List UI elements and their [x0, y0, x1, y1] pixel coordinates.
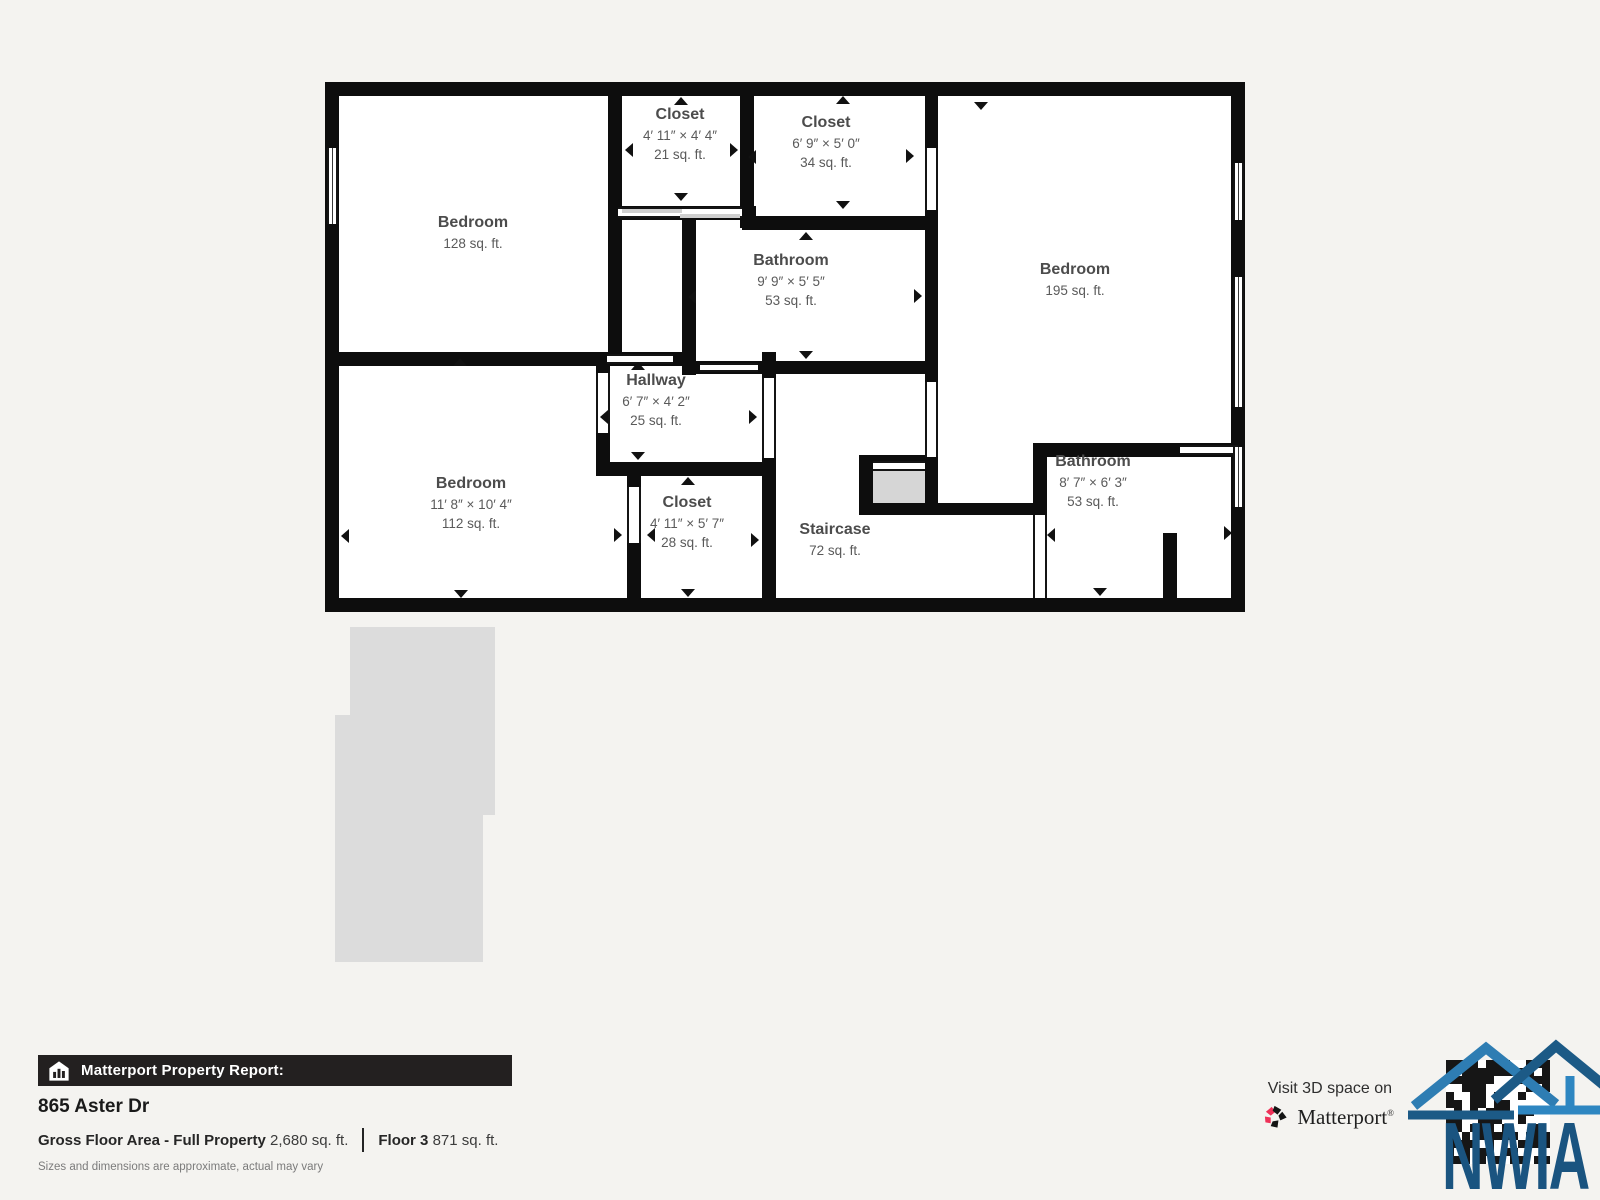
door-opening: [1180, 445, 1238, 455]
room-bedroom-right: Bedroom 195 sq. ft.: [950, 259, 1200, 301]
room-label: Closet: [627, 492, 747, 514]
door-arrow: [681, 589, 695, 597]
matterport-wordmark: Matterport®: [1297, 1105, 1394, 1130]
wall: [325, 82, 1245, 96]
report-banner: Matterport Property Report:: [38, 1055, 512, 1086]
wall: [742, 216, 938, 230]
floor-label: Floor 3: [378, 1132, 428, 1149]
door-arrow: [799, 232, 813, 240]
room-area: 53 sq. ft.: [696, 291, 886, 311]
room-label: Bathroom: [696, 250, 886, 272]
room-area: 128 sq. ft.: [338, 234, 608, 254]
floor-area-value: 871 sq. ft.: [433, 1132, 499, 1149]
room-dimensions: 11′ 8″ × 10′ 4″: [340, 495, 602, 514]
door-arrow: [453, 358, 467, 366]
room-label: Bedroom: [340, 473, 602, 495]
lower-floor-silhouette: [335, 715, 483, 962]
door-arrow: [751, 533, 759, 547]
room-area: 28 sq. ft.: [627, 533, 747, 553]
door-arrow: [1224, 526, 1232, 540]
room-bathroom-middle: Bathroom 9′ 9″ × 5′ 5″ 53 sq. ft.: [696, 250, 886, 311]
room-area: 53 sq. ft.: [1003, 492, 1183, 512]
matterport-house-icon: [48, 1060, 70, 1082]
room-label: Bedroom: [950, 259, 1200, 281]
door-arrow: [688, 290, 696, 304]
report-banner-title: Matterport Property Report:: [81, 1062, 284, 1079]
room-dimensions: 6′ 9″ × 5′ 0″: [756, 134, 896, 153]
sliding-door-panel: [622, 209, 682, 213]
matterport-pinwheel-icon: [1263, 1104, 1290, 1131]
room-label: Hallway: [596, 370, 716, 392]
door-arrow: [1093, 588, 1107, 596]
registered-mark: ®: [1387, 1108, 1394, 1118]
room-dimensions: 4′ 11″ × 4′ 4″: [620, 126, 740, 145]
floor-plan: Bedroom 128 sq. ft. Closet 4′ 11″ × 4′ 4…: [0, 0, 1600, 1200]
room-staircase: Staircase 72 sq. ft.: [765, 519, 905, 561]
door-arrow: [1047, 528, 1055, 542]
room-label: Closet: [620, 104, 740, 126]
window: [1233, 163, 1244, 220]
room-dimensions: 6′ 7″ × 4′ 2″: [596, 392, 716, 411]
wall: [1163, 533, 1177, 612]
room-area: 112 sq. ft.: [340, 514, 602, 534]
sliding-door-panel: [680, 214, 740, 218]
door-arrow: [674, 193, 688, 201]
stair-opening: [873, 461, 925, 471]
door-arrow: [748, 150, 756, 164]
room-label: Closet: [756, 112, 896, 134]
nwia-watermark-logo: NWIA: [1408, 1028, 1600, 1200]
door-arrow: [454, 590, 468, 598]
door-arrow: [681, 477, 695, 485]
gross-floor-area-label: Gross Floor Area - Full Property: [38, 1132, 266, 1149]
stair-landing: [873, 471, 925, 503]
room-area: 21 sq. ft.: [620, 145, 740, 165]
door-arrow: [631, 362, 645, 370]
door-arrow: [906, 149, 914, 163]
window: [1233, 447, 1244, 507]
room-dimensions: 4′ 11″ × 5′ 7″: [627, 514, 747, 533]
room-area: 34 sq. ft.: [756, 153, 896, 173]
room-closet-top-right: Closet 6′ 9″ × 5′ 0″ 34 sq. ft.: [756, 112, 896, 173]
door-arrow: [836, 201, 850, 209]
room-label: Staircase: [765, 519, 905, 541]
door-opening: [925, 148, 938, 210]
nwia-wordmark: NWIA: [1442, 1109, 1588, 1200]
wall: [596, 462, 776, 476]
window: [327, 148, 338, 224]
visit-3d-space-text: Visit 3D space on: [1140, 1080, 1392, 1098]
door-arrow: [631, 452, 645, 460]
gross-floor-area-value: 2,680 sq. ft.: [270, 1132, 348, 1149]
door-arrow: [836, 96, 850, 104]
floor-area-line: Gross Floor Area - Full Property 2,680 s…: [38, 1128, 498, 1152]
wall: [325, 598, 1245, 612]
door-opening: [1033, 515, 1047, 598]
room-hallway: Hallway 6′ 7″ × 4′ 2″ 25 sq. ft.: [596, 370, 716, 431]
room-bedroom-bottom-left: Bedroom 11′ 8″ × 10′ 4″ 112 sq. ft.: [340, 473, 602, 534]
room-area: 72 sq. ft.: [765, 541, 905, 561]
door-arrow: [974, 102, 988, 110]
room-dimensions: 9′ 9″ × 5′ 5″: [696, 272, 886, 291]
property-address: 865 Aster Dr: [38, 1096, 149, 1118]
room-label: Bedroom: [338, 212, 608, 234]
room-bathroom-bottom-right: Bathroom 8′ 7″ × 6′ 3″ 53 sq. ft.: [1003, 451, 1183, 512]
window: [1233, 277, 1244, 407]
divider: [362, 1128, 364, 1152]
room-area: 25 sq. ft.: [596, 411, 716, 431]
door-arrow: [914, 289, 922, 303]
door-opening: [925, 382, 938, 457]
room-label: Bathroom: [1003, 451, 1183, 473]
room-closet-top-left: Closet 4′ 11″ × 4′ 4″ 21 sq. ft.: [620, 104, 740, 165]
door-arrow: [614, 528, 622, 542]
door-arrow: [749, 410, 757, 424]
room-bedroom-top-left: Bedroom 128 sq. ft.: [338, 212, 608, 254]
door-opening: [762, 378, 776, 458]
room-closet-bottom: Closet 4′ 11″ × 5′ 7″ 28 sq. ft.: [627, 492, 747, 553]
room-dimensions: 8′ 7″ × 6′ 3″: [1003, 473, 1183, 492]
disclaimer-text: Sizes and dimensions are approximate, ac…: [38, 1161, 323, 1173]
room-area: 195 sq. ft.: [950, 281, 1200, 301]
matterport-logo-link[interactable]: Matterport®: [1140, 1104, 1394, 1131]
door-arrow: [799, 351, 813, 359]
